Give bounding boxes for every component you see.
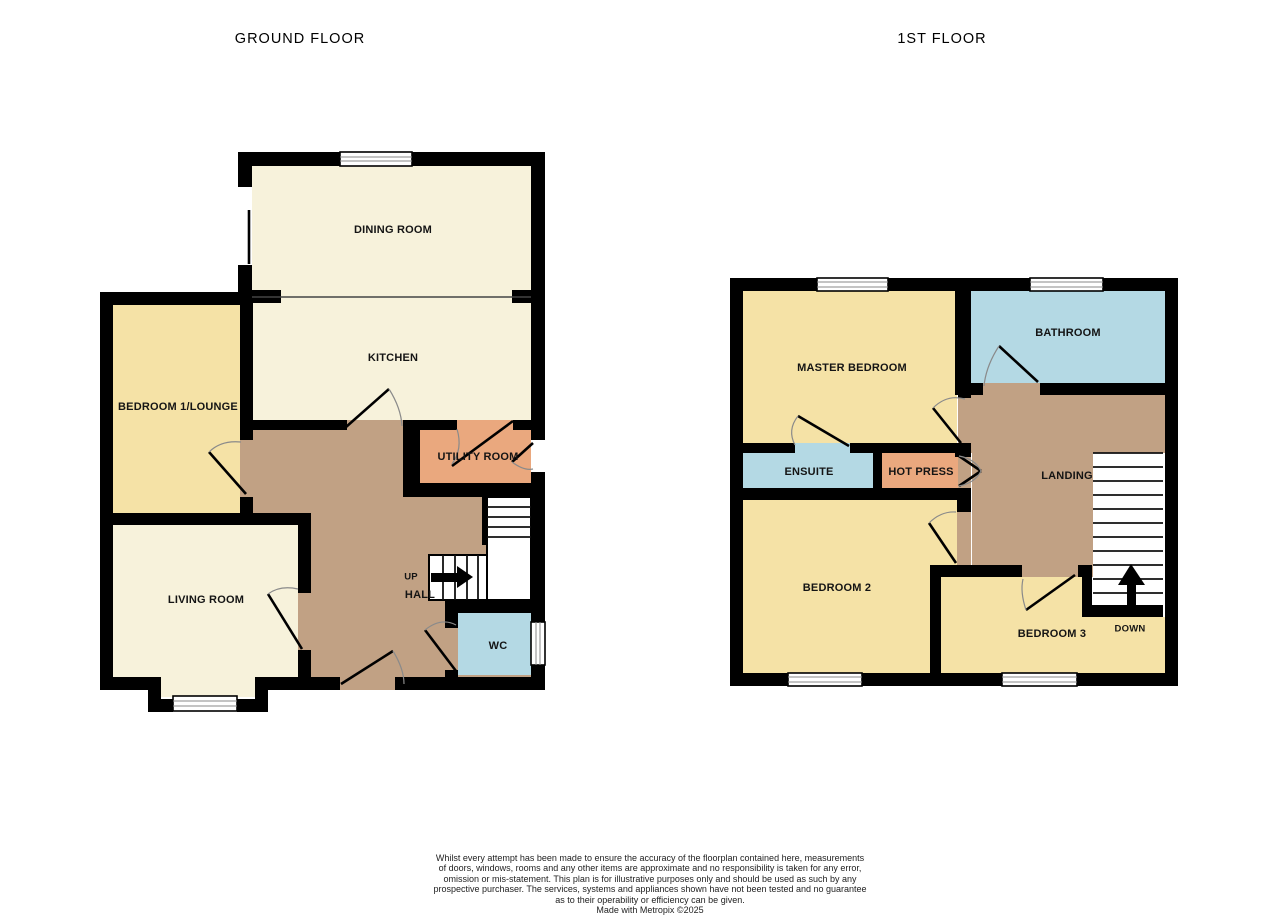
back-door-opening	[531, 440, 545, 472]
disclaimer-line: Whilst every attempt has been made to en…	[340, 853, 960, 863]
wall-segment	[482, 497, 487, 545]
kitchen-door-opening	[347, 420, 403, 430]
wall-segment	[445, 613, 458, 628]
window	[1030, 278, 1103, 291]
window	[817, 278, 888, 291]
label-stairs-up: UP	[404, 572, 418, 583]
disclaimer-line: omission or mis-statement. This plan is …	[340, 874, 960, 884]
window	[531, 622, 545, 665]
wall-segment	[850, 443, 971, 453]
wall-segment	[148, 699, 173, 712]
landing-floor	[958, 395, 1165, 453]
wall-segment	[531, 152, 545, 690]
wall-segment	[403, 483, 531, 497]
wall-segment	[268, 677, 340, 690]
first-floor-stairs	[1093, 453, 1163, 607]
wall-segment	[1040, 383, 1165, 395]
first-floor-plan	[730, 278, 1178, 686]
ground-floor-title: GROUND FLOOR	[235, 31, 365, 47]
window	[788, 673, 862, 686]
wall-segment	[100, 513, 311, 525]
down-arrow-stem	[1127, 583, 1136, 606]
label-ensuite: ENSUITE	[784, 466, 833, 478]
wall-segment	[298, 513, 311, 593]
metropix-credit: Made with Metropix ©2025	[340, 905, 960, 915]
label-living-room: LIVING ROOM	[168, 594, 244, 606]
wall-segment	[100, 292, 113, 690]
label-bedroom3: BEDROOM 3	[1018, 628, 1086, 640]
disclaimer: Whilst every attempt has been made to en…	[340, 853, 960, 915]
label-bedroom2: BEDROOM 2	[803, 582, 871, 594]
wall-segment	[930, 565, 1022, 577]
bay-window-floor	[161, 677, 255, 697]
disclaimer-line: of doors, windows, rooms and any other i…	[340, 863, 960, 873]
wall-segment	[730, 278, 1178, 291]
wall-segment	[238, 152, 252, 187]
floorplan-drawing	[0, 0, 1280, 917]
ensuite-door-opening	[795, 443, 850, 453]
wall-segment	[240, 305, 253, 440]
wall-segment	[240, 420, 347, 430]
wall-segment	[298, 650, 311, 677]
wall-segment	[958, 291, 971, 398]
label-stairs-down: DOWN	[1115, 624, 1146, 635]
label-master-bedroom: MASTER BEDROOM	[797, 362, 907, 374]
wall-segment	[743, 443, 795, 453]
disclaimer-line: as to their operability or efficiency ca…	[340, 895, 960, 905]
label-hall: HALL	[405, 589, 435, 601]
wall-segment	[957, 488, 971, 512]
window	[1002, 673, 1077, 686]
wall-segment	[873, 453, 882, 488]
label-dining-room: DINING ROOM	[354, 224, 432, 236]
wall-segment	[930, 565, 941, 673]
label-hot-press: HOT PRESS	[888, 466, 953, 478]
stair-flight	[487, 497, 531, 600]
wall-segment	[445, 670, 458, 677]
wall-segment	[955, 443, 971, 457]
bedroom3-floor	[941, 577, 1082, 673]
window	[340, 152, 412, 166]
wall-segment	[237, 699, 268, 712]
label-utility-room: UTILITY ROOM	[437, 451, 518, 463]
bedroom2-door-opening	[957, 512, 971, 565]
wall-segment	[240, 497, 253, 513]
living-door-opening	[298, 593, 311, 650]
label-wc: WC	[489, 640, 508, 652]
window	[173, 696, 237, 711]
ground-floor-plan	[100, 152, 545, 712]
bathroom-door-opening	[983, 383, 1040, 395]
disclaimer-line: prospective purchaser. The services, sys…	[340, 884, 960, 894]
wall-segment	[513, 420, 531, 430]
label-bedroom1-lounge: BEDROOM 1/LOUNGE	[118, 401, 238, 413]
floorplan-page: GROUND FLOOR 1ST FLOOR DINING ROOM KITCH…	[0, 0, 1280, 917]
wall-segment	[743, 488, 971, 500]
label-landing: LANDING	[1041, 470, 1093, 482]
label-kitchen: KITCHEN	[368, 352, 418, 364]
wall-segment	[1165, 278, 1178, 686]
wall-segment	[445, 600, 531, 613]
up-arrow-stem	[431, 573, 457, 582]
dining-kitchen-floor	[252, 166, 531, 420]
wall-segment	[100, 292, 253, 305]
wall-segment	[1082, 605, 1163, 617]
wall-segment	[395, 677, 545, 690]
label-bathroom: BATHROOM	[1035, 327, 1101, 339]
wall-segment	[730, 278, 743, 686]
first-floor-title: 1ST FLOOR	[897, 31, 986, 47]
wall-segment	[100, 677, 148, 690]
